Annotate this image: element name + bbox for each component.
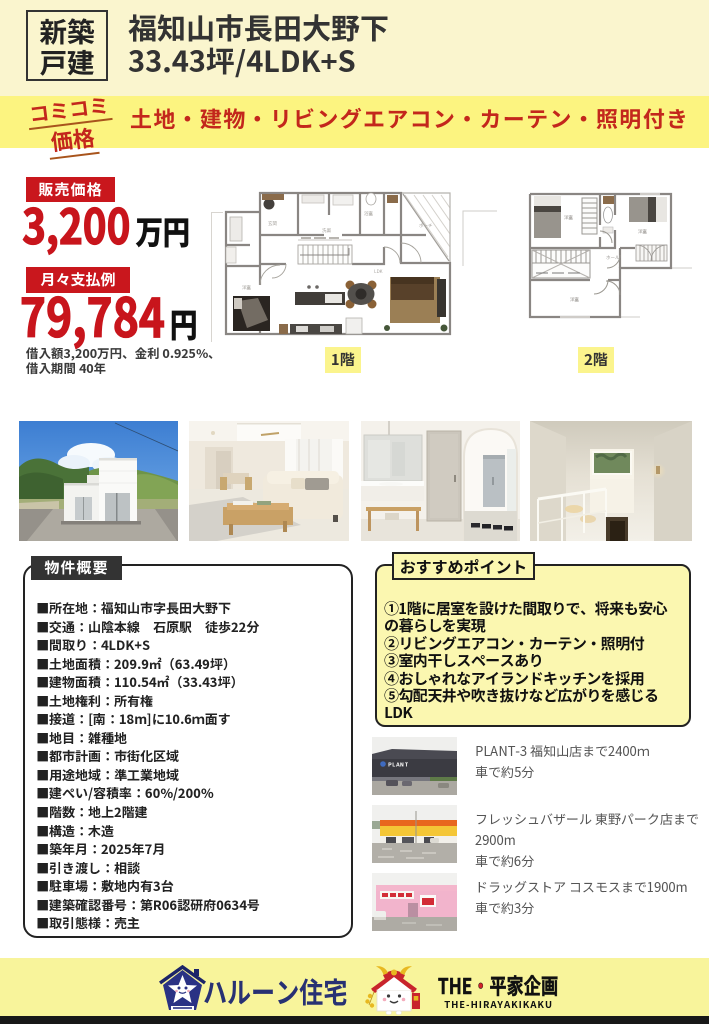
svg-text:LDK: LDK [374,269,383,275]
svg-text:洋室: 洋室 [638,228,647,235]
svg-text:洋室: 洋室 [570,296,579,303]
svg-text:PLANT: PLANT [388,761,408,769]
svg-text:浴室: 浴室 [364,210,373,217]
svg-text:洗面: 洗面 [322,227,331,234]
svg-text:ホール: ホール [606,255,620,261]
svg-text:玄関: 玄関 [268,220,277,227]
svg-text:ポーチ: ポーチ [419,223,433,229]
svg-text:洋室: 洋室 [564,214,573,221]
svg-text:洋室: 洋室 [242,284,251,291]
